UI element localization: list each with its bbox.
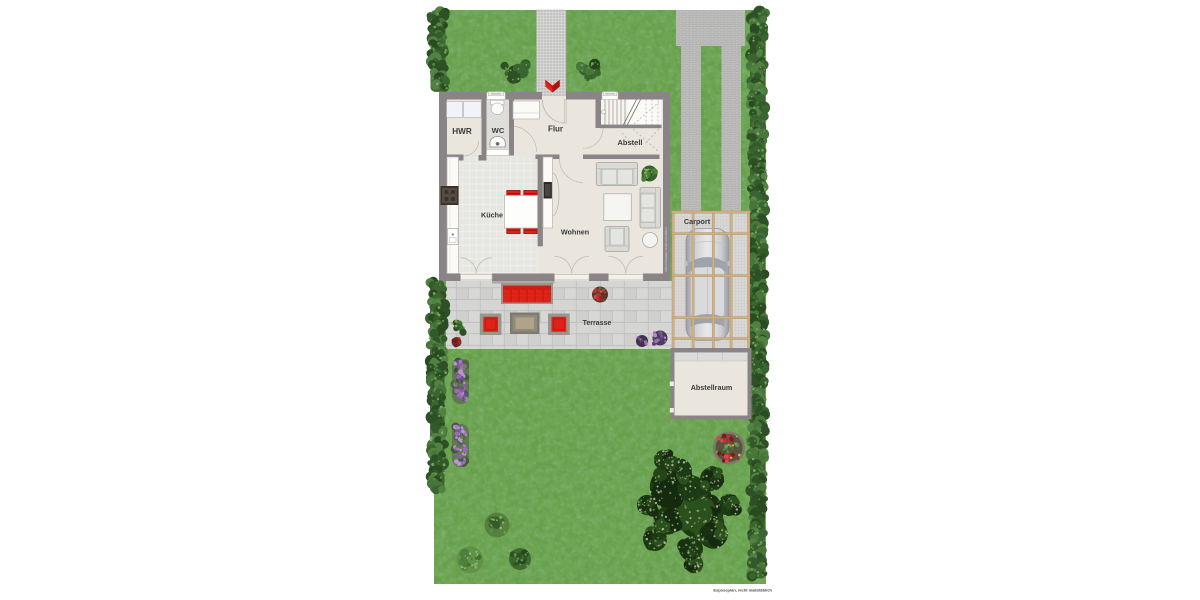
svg-text:Jalousien: Jalousien <box>605 93 616 96</box>
svg-text:Abstellraum: Abstellraum <box>691 383 733 392</box>
svg-text:Küche: Küche <box>481 211 503 220</box>
svg-text:Exposeplan, nicht maßstäblich: Exposeplan, nicht maßstäblich <box>713 588 772 593</box>
svg-text:Carport: Carport <box>684 217 711 226</box>
svg-text:LBS Immobilien GmbH NordWest: LBS Immobilien GmbH NordWest <box>664 227 668 272</box>
svg-text:WC: WC <box>492 126 505 135</box>
svg-text:Jalousien: Jalousien <box>491 93 502 96</box>
svg-text:Terrasse: Terrasse <box>583 320 612 327</box>
svg-text:Abstell: Abstell <box>617 138 642 147</box>
svg-text:HWR: HWR <box>452 127 472 136</box>
svg-text:Flur: Flur <box>548 125 563 134</box>
svg-text:Wohnen: Wohnen <box>561 228 589 237</box>
